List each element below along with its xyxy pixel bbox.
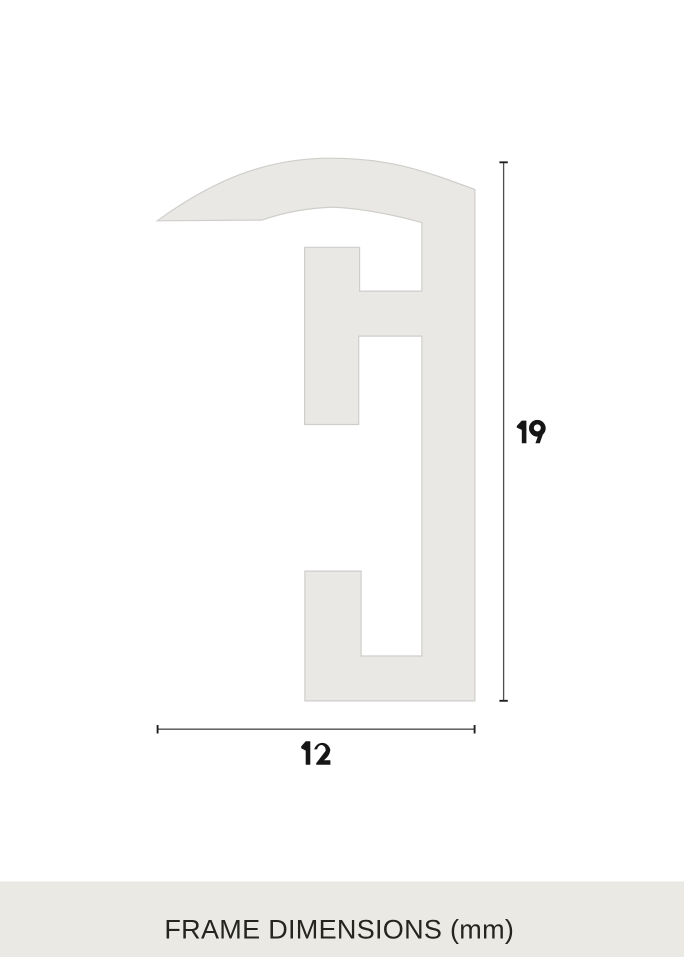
svg-text:FRAME DIMENSIONS (mm): FRAME DIMENSIONS (mm) [164,915,514,945]
